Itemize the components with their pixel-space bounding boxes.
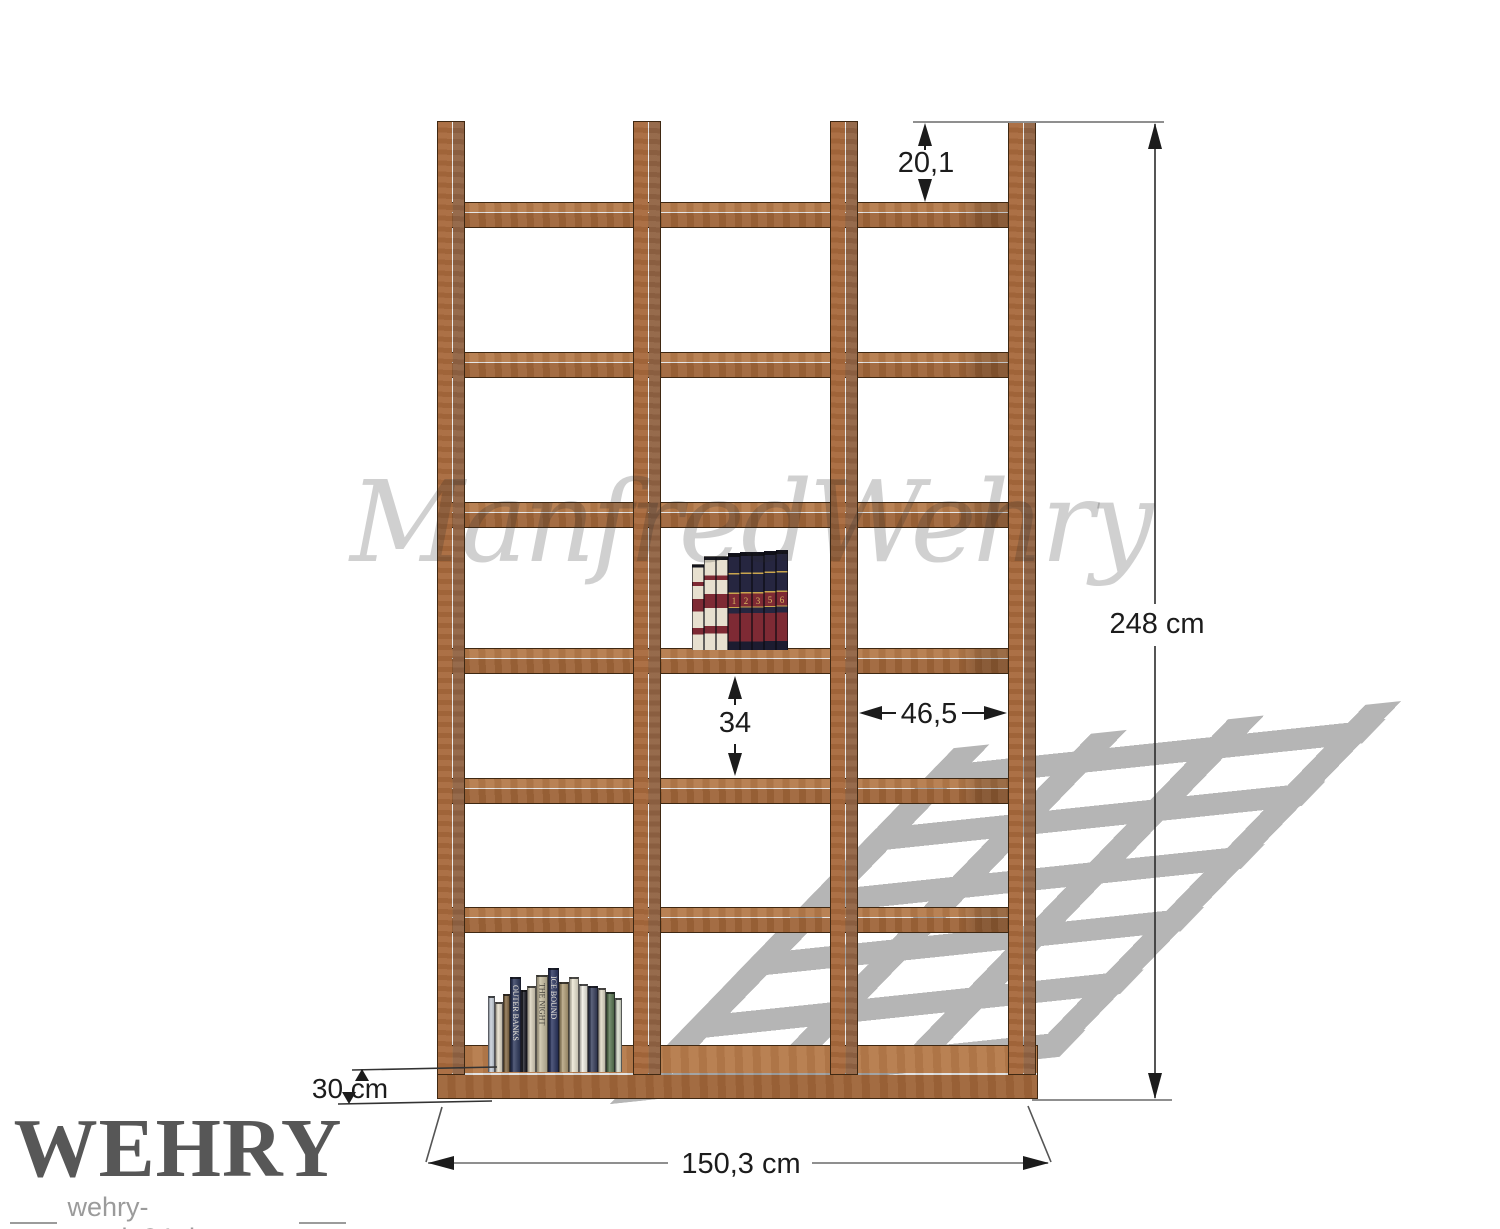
brand-website-row: wehry-regale24.de [10, 1192, 346, 1229]
dimension-lines-layer [0, 0, 1500, 1229]
dimension-label-compartment-width: 46,5 [896, 698, 962, 730]
brand-logo: WEHRY wehry-regale24.de [10, 1106, 346, 1229]
dimension-label-total-height: 248 cm [1094, 608, 1220, 640]
dimension-label-top-offset: 20,1 [895, 147, 957, 179]
dimension-label-compartment-height: 34 [711, 707, 759, 739]
brand-logo-text: WEHRY [10, 1106, 346, 1192]
logo-rule-left [10, 1222, 57, 1224]
logo-rule-right [299, 1222, 346, 1224]
brand-website-text: wehry-regale24.de [67, 1192, 288, 1229]
product-dimension-diagram: OUTER BANKSTHE NIGHTICE BOUND 12356 Manf… [0, 0, 1500, 1229]
dimension-label-total-width: 150,3 cm [670, 1148, 812, 1180]
dimension-label-depth: 30 cm [306, 1073, 394, 1105]
